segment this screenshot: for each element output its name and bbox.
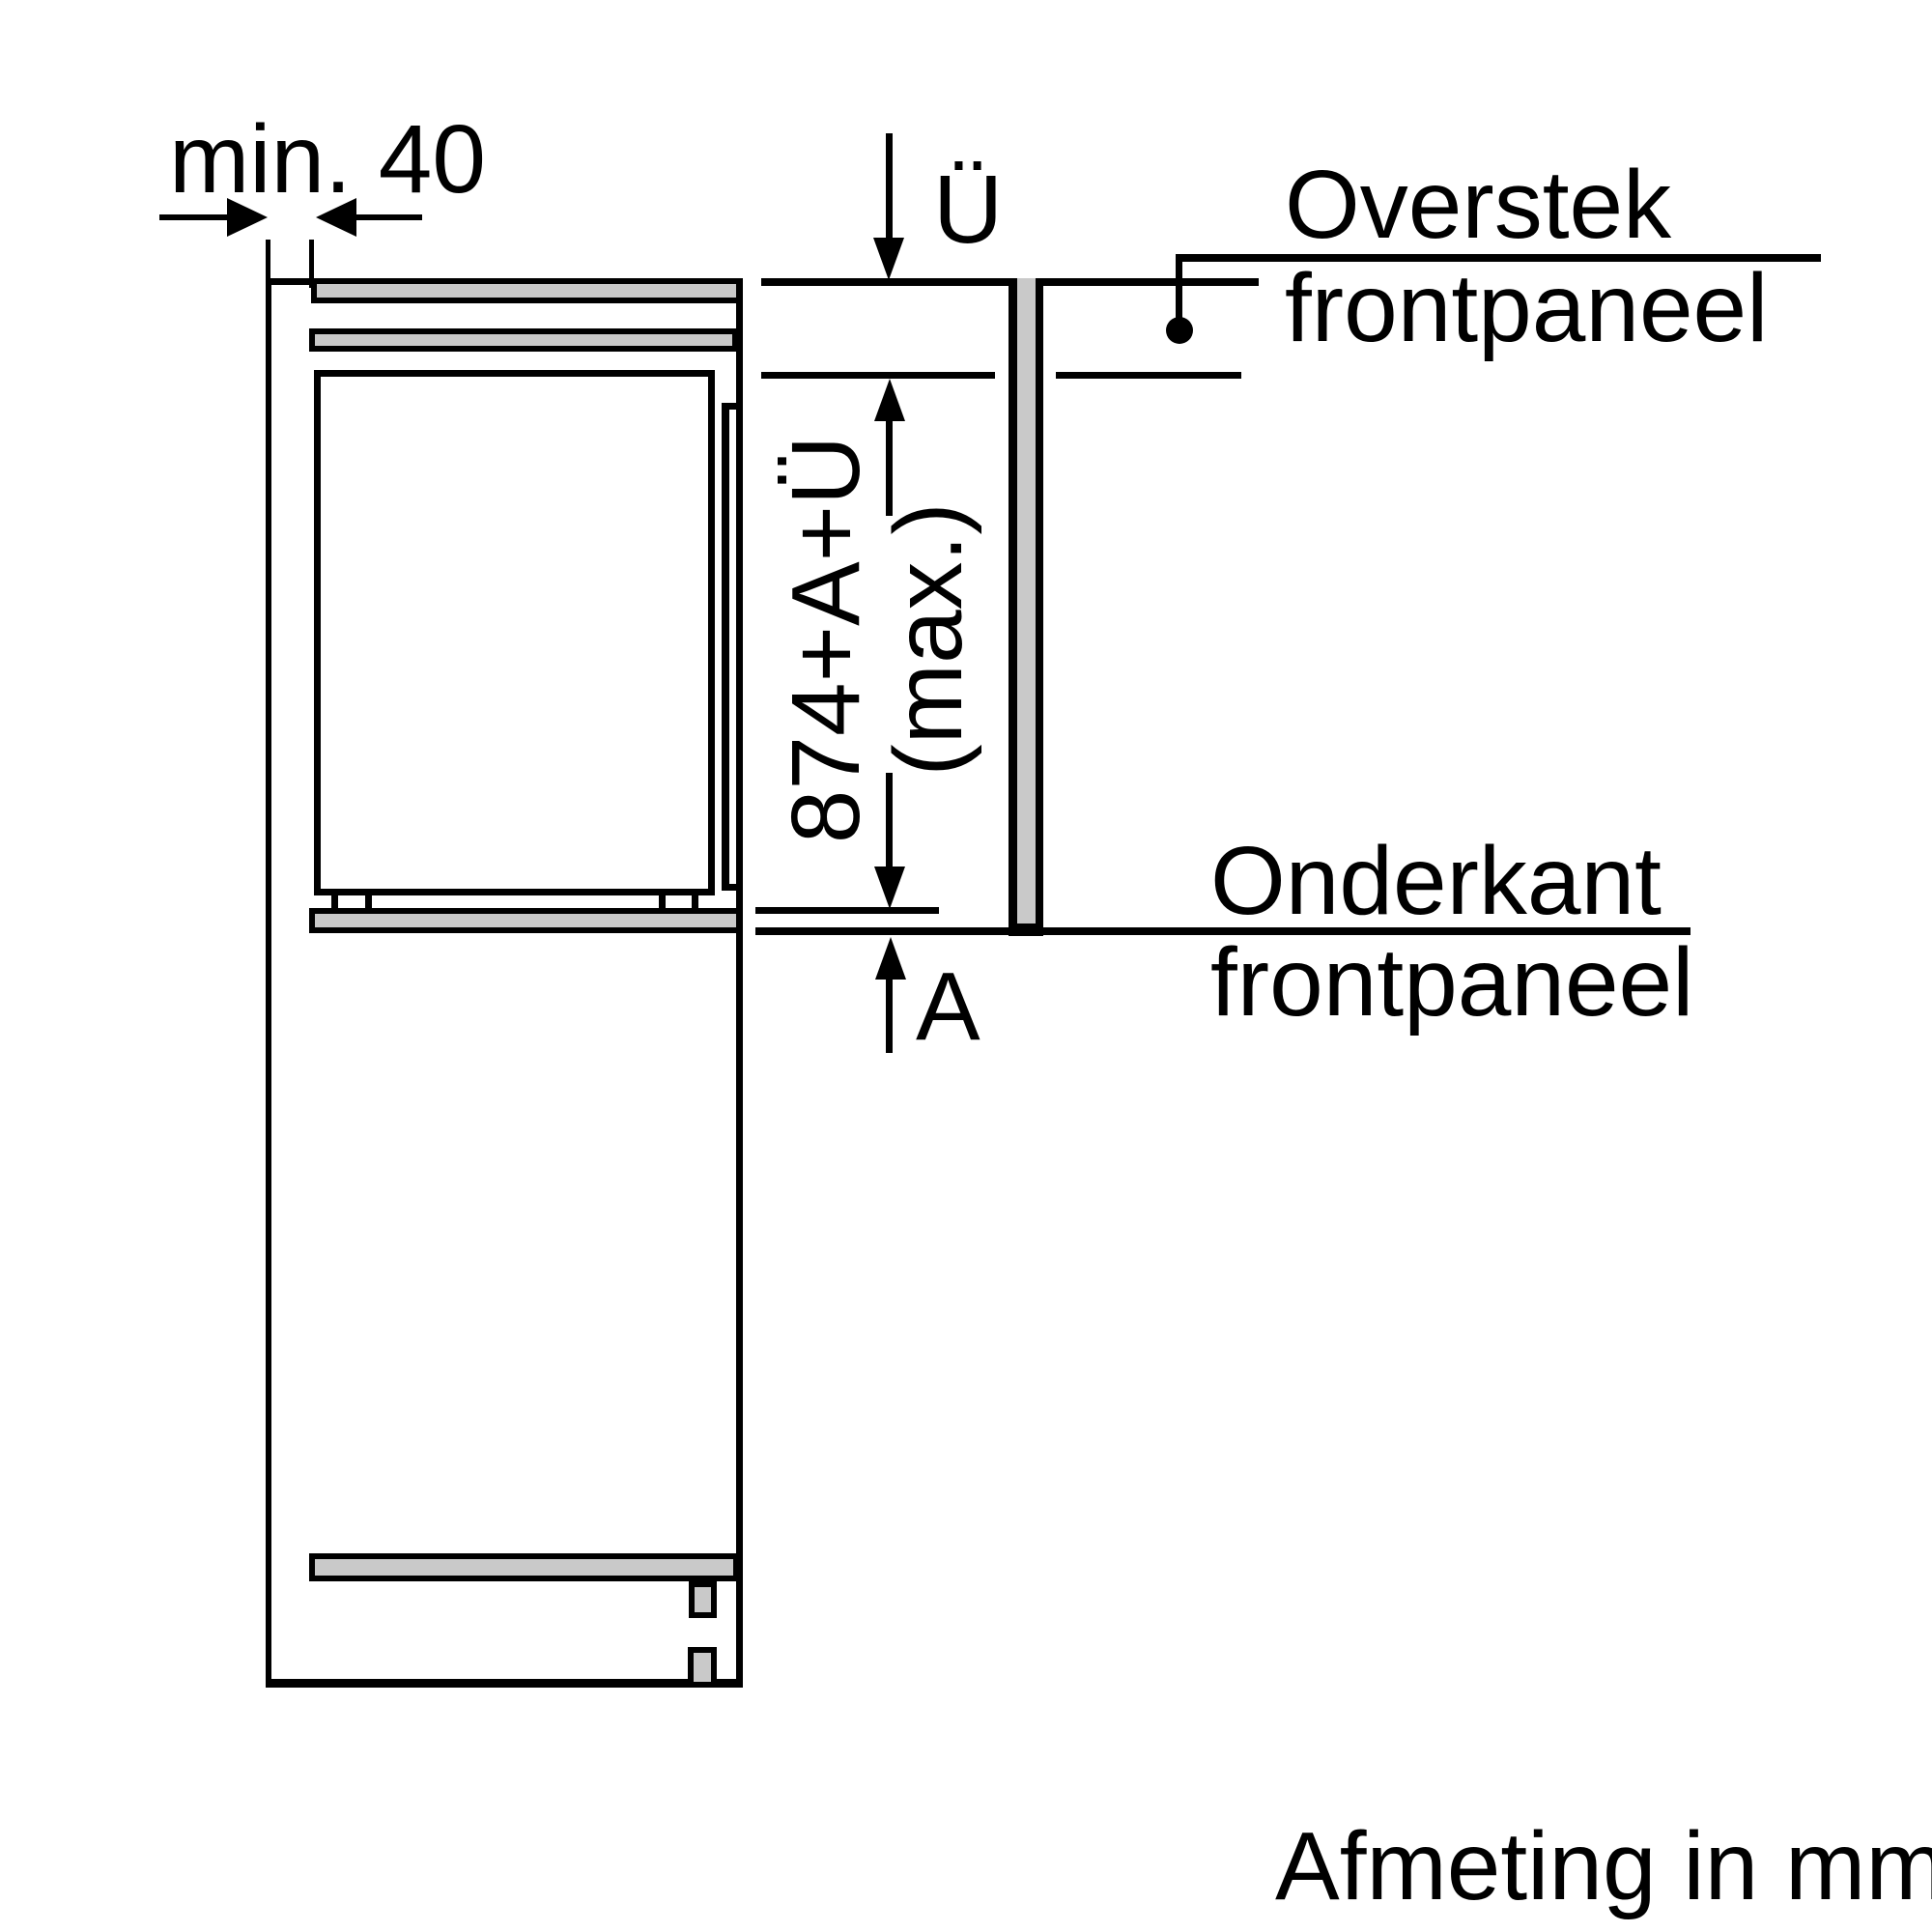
footer-units-label: Afmeting in mm bbox=[1275, 1818, 1932, 1915]
door-foot-stroke bbox=[659, 895, 666, 909]
top-shelf-panel bbox=[311, 278, 742, 303]
leader-dot bbox=[1166, 317, 1193, 344]
cabinet-bottom-edge bbox=[266, 1679, 743, 1688]
height-arrow-up-head bbox=[874, 379, 905, 421]
upper-shelf-panel bbox=[309, 328, 738, 352]
appliance-door bbox=[314, 370, 715, 895]
cabinet-left-wall bbox=[266, 278, 271, 1688]
door-hinge-strip bbox=[722, 403, 729, 891]
front-panel-bar bbox=[1009, 278, 1043, 936]
min40-arrow-left-line bbox=[159, 214, 229, 220]
panel-height-label-line1: 874+A+Ü bbox=[772, 436, 880, 844]
height-arrow-down-head bbox=[874, 867, 905, 909]
onderkant-callout-line1: Onderkant bbox=[1210, 827, 1662, 935]
door-foot-stroke bbox=[365, 895, 372, 909]
door-foot-stroke bbox=[692, 895, 698, 909]
hinge-bottom-connector bbox=[722, 884, 743, 891]
niche-bottom-shelf bbox=[309, 908, 742, 933]
min40-tick-right bbox=[309, 240, 314, 288]
overstek-callout-line1: Overstek bbox=[1285, 151, 1671, 259]
panel-height-label-line2: (max.) bbox=[874, 502, 982, 776]
panel-height-label: 874+A+Ü (max.) bbox=[775, 436, 980, 844]
cabinet-right-wall bbox=[736, 278, 743, 1688]
plinth-shelf bbox=[309, 1553, 739, 1581]
spacer-block-upper bbox=[689, 1581, 717, 1618]
ue-arrow-shaft bbox=[886, 133, 893, 241]
overstek-callout: Overstek frontpaneel bbox=[1285, 154, 1768, 360]
installation-diagram: min. 40 Ü 874+A+Ü (max.) A Overstek fron… bbox=[0, 0, 1932, 1932]
bottom-gap-label: A bbox=[916, 958, 980, 1055]
height-dim-bottom-line bbox=[755, 907, 939, 914]
min40-arrow-right-line bbox=[355, 214, 422, 220]
hinge-top-connector bbox=[722, 403, 743, 410]
overstek-callout-line2: frontpaneel bbox=[1285, 254, 1768, 362]
overhang-label: Ü bbox=[933, 161, 1003, 258]
onderkant-callout-line2: frontpaneel bbox=[1210, 928, 1693, 1037]
door-foot-stroke bbox=[331, 895, 338, 909]
min-gap-label: min. 40 bbox=[169, 111, 486, 208]
spacer-block-lower bbox=[688, 1647, 717, 1688]
min40-tick-left bbox=[266, 240, 270, 282]
a-arrow-shaft bbox=[886, 978, 893, 1053]
overstek-leader-vertical bbox=[1176, 254, 1182, 324]
height-dim-top-line-right bbox=[1056, 372, 1241, 379]
height-dim-top-line-left bbox=[761, 372, 995, 379]
onderkant-callout: Onderkant frontpaneel bbox=[1210, 831, 1693, 1034]
a-arrow-head bbox=[875, 937, 906, 980]
ue-arrow-head bbox=[873, 238, 904, 280]
